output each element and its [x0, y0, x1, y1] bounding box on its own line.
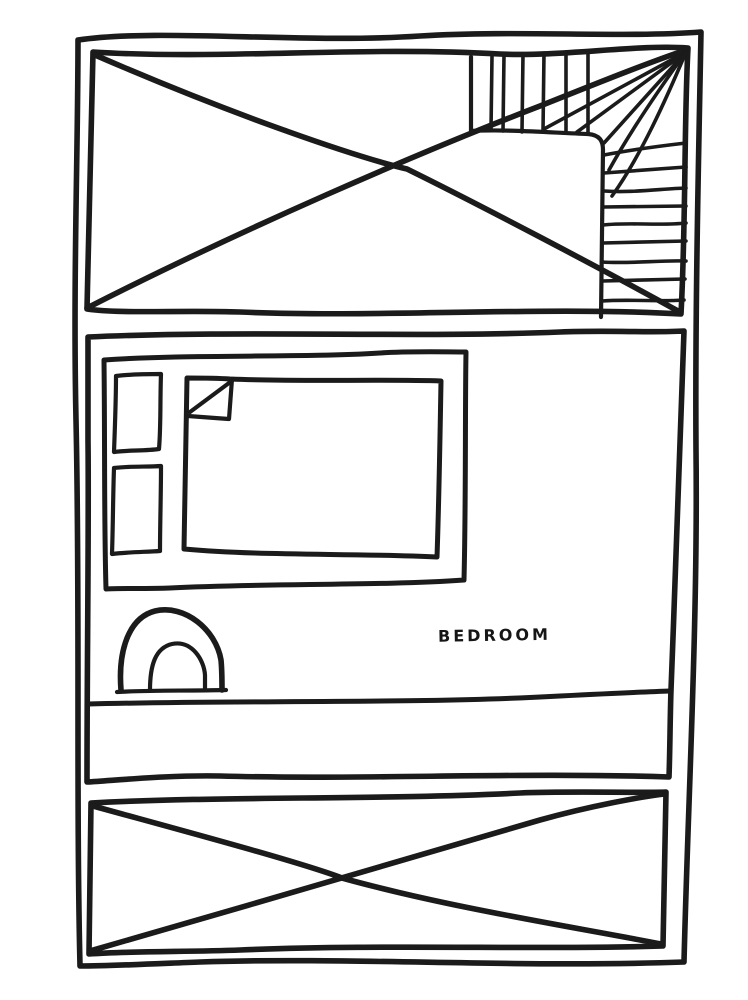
floor-plan-svg: BEDROOM — [0, 0, 748, 1000]
pillow — [112, 466, 161, 554]
stair-tread-line — [604, 167, 686, 173]
pillow — [114, 374, 161, 452]
stair-tread-line — [603, 223, 686, 225]
stair-tread-line — [503, 55, 504, 131]
stair-tread-line — [603, 241, 686, 243]
bed — [104, 352, 466, 589]
stair-tread-line — [604, 143, 686, 155]
bottom-room — [89, 792, 666, 954]
duvet — [184, 378, 441, 557]
stair-tread-line — [603, 206, 686, 207]
door-swing — [117, 610, 226, 692]
door-arch-baseline — [117, 690, 226, 692]
duvet-fold-diagonal — [190, 383, 229, 412]
bedroom-label: BEDROOM — [438, 625, 551, 646]
stair-tread-line — [491, 56, 492, 130]
top-room-cross-diagonal-1 — [95, 55, 678, 311]
stair-tread-line — [602, 279, 685, 281]
floor-plan-page: BEDROOM — [0, 0, 748, 1000]
bedroom-hallway-divider-wall — [88, 691, 670, 704]
top-room — [87, 47, 688, 317]
bedroom-section: BEDROOM — [87, 331, 684, 782]
stair-tread-line — [602, 300, 684, 301]
stair-tread-line — [602, 261, 686, 263]
door-arch-inner — [150, 643, 205, 690]
stair-tread-line — [522, 54, 523, 132]
stair-tread-line — [543, 53, 544, 132]
